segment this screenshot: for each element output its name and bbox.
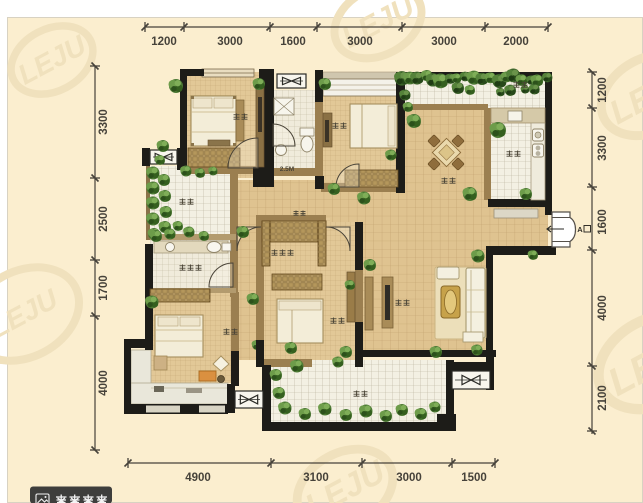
svg-text:4000: 4000 — [98, 370, 110, 396]
svg-text:3300: 3300 — [98, 109, 110, 135]
svg-text:3300: 3300 — [597, 135, 609, 161]
svg-text:1600: 1600 — [280, 36, 306, 48]
svg-text:3000: 3000 — [217, 36, 243, 48]
svg-text:4900: 4900 — [185, 472, 211, 484]
svg-text:2.5M: 2.5M — [280, 166, 294, 173]
svg-text:A: A — [577, 225, 583, 234]
svg-text:1700: 1700 — [98, 275, 110, 301]
svg-text:1200: 1200 — [151, 36, 177, 48]
svg-text:2000: 2000 — [503, 36, 529, 48]
svg-text:3000: 3000 — [347, 36, 373, 48]
svg-text:1200: 1200 — [597, 77, 609, 103]
svg-text:3100: 3100 — [303, 472, 329, 484]
svg-text:1500: 1500 — [461, 472, 487, 484]
svg-text:3000: 3000 — [431, 36, 457, 48]
svg-text:3000: 3000 — [396, 472, 422, 484]
svg-text:2100: 2100 — [597, 385, 609, 411]
svg-text:1600: 1600 — [597, 209, 609, 235]
svg-text:4000: 4000 — [597, 295, 609, 321]
svg-text:2500: 2500 — [98, 206, 110, 232]
